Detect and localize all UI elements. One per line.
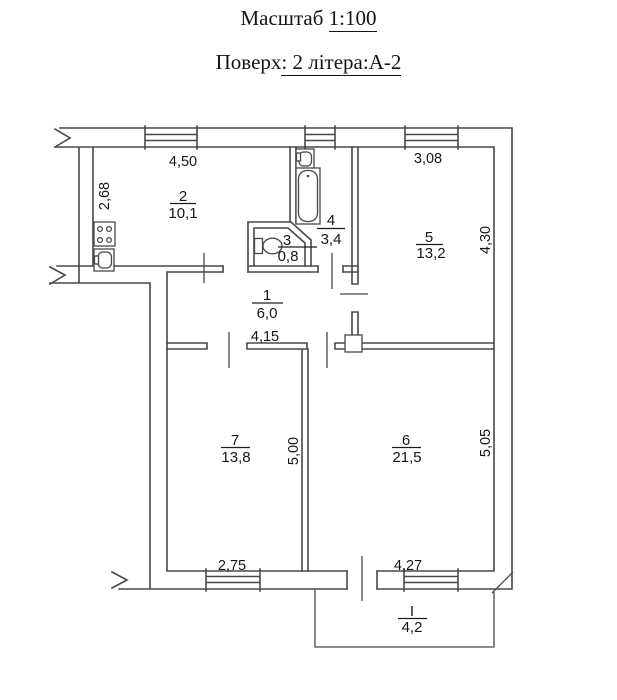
bathtub-drain	[307, 175, 310, 178]
doors	[204, 253, 368, 601]
dimension-room5-right: 4,30	[478, 226, 494, 254]
kitchen-sink-icon	[94, 249, 114, 271]
dimension-hallway-bottom: 4,15	[251, 329, 279, 345]
room-area-bathroom: 3,4	[321, 231, 342, 248]
room-number-room6: 6	[402, 432, 410, 449]
room-area-balcony: 4,2	[402, 619, 423, 636]
room-area-room7: 13,8	[221, 449, 250, 466]
room-area-wc: 0,8	[278, 248, 299, 265]
room-area-room6: 21,5	[392, 449, 421, 466]
wall-break-icon	[50, 129, 127, 588]
room-number-room5: 5	[425, 229, 433, 246]
dimension-room6-bottom: 4,27	[394, 558, 422, 574]
exterior-wall-lines	[50, 128, 512, 589]
dimension-room6-right: 5,05	[478, 429, 494, 457]
room-area-kitchen: 10,1	[168, 205, 197, 222]
dimension-room7-bottom: 2,75	[218, 558, 246, 574]
stove-body	[94, 222, 115, 246]
dimension-kitchen-top: 4,50	[169, 154, 197, 170]
stove-icon	[94, 222, 115, 246]
bathtub-icon	[296, 168, 320, 224]
floor-plan-drawing: 1 6,0 2 10,1 3 0,8 4 3,4 5 13,2 6 21,5 7…	[0, 0, 617, 700]
exterior-walls	[50, 128, 512, 589]
dimension-room5-top: 3,08	[414, 151, 442, 167]
dimension-kitchen-left: 2,68	[97, 182, 113, 210]
door-leaf-icon	[204, 253, 368, 601]
room-number-wc: 3	[283, 232, 291, 249]
room-number-room7: 7	[231, 432, 239, 449]
room-number-balcony: I	[410, 603, 414, 620]
dimension-room7-right: 5,00	[286, 437, 302, 465]
wash-basin-icon	[296, 149, 314, 169]
room-area-room5: 13,2	[416, 245, 445, 262]
room-area-hallway: 6,0	[257, 305, 278, 322]
room-number-hallway: 1	[263, 287, 271, 304]
vent-shaft	[345, 335, 362, 352]
room-number-kitchen: 2	[179, 188, 187, 205]
room-number-bathroom: 4	[327, 212, 335, 229]
basin-tap	[297, 153, 301, 161]
sink-tap	[95, 256, 99, 264]
floor-plan-page: Масштаб 1:100 Поверх: 2 літера:А-2	[0, 0, 617, 700]
toilet-tank	[255, 239, 263, 254]
